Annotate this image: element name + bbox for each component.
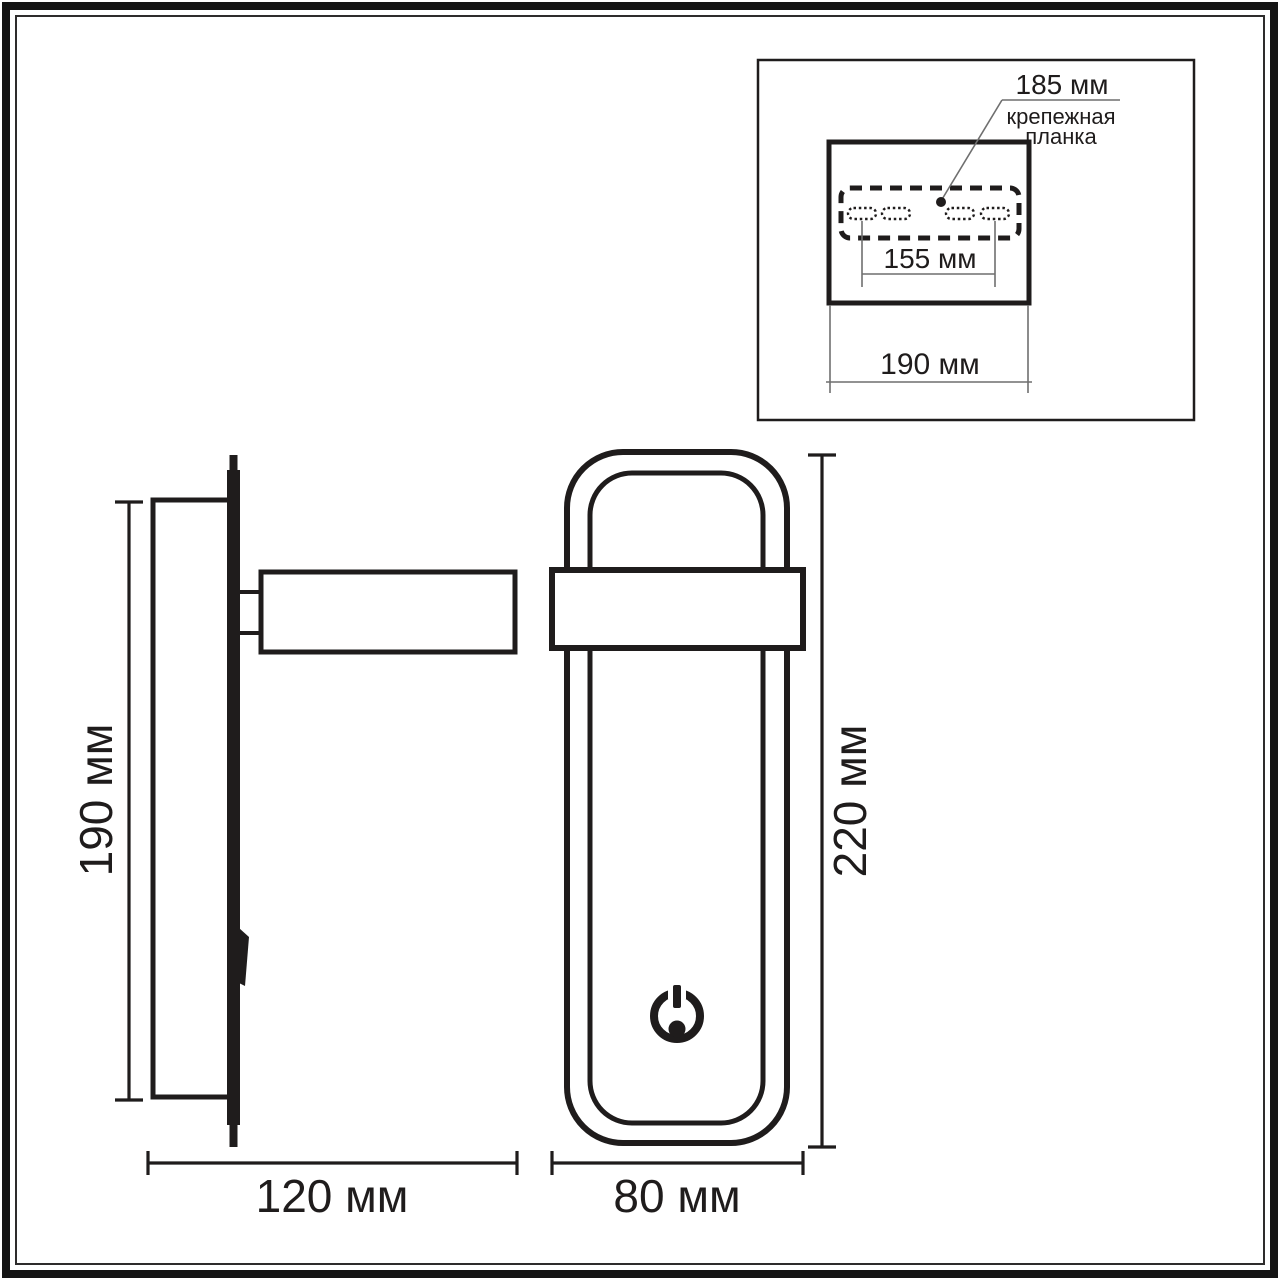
- bracket-name-line2: планка: [1025, 124, 1097, 149]
- backplate-outline: [153, 500, 230, 1097]
- front-width-label: 80 мм: [613, 1170, 740, 1222]
- mounting-slot-2: [882, 208, 910, 219]
- spot-arm: [261, 572, 515, 652]
- spot-head-front: [552, 570, 803, 648]
- side-view: 190 мм 120 мм: [70, 455, 517, 1222]
- wall-bar-top-tip: [230, 455, 238, 475]
- box-width-label: 190 мм: [880, 348, 980, 381]
- side-depth-label: 120 мм: [256, 1170, 409, 1222]
- drawing-canvas: 185 мм крепежная планка 155 мм 190 мм: [0, 0, 1280, 1280]
- power-icon-bar: [673, 985, 681, 1008]
- inset-detail: 185 мм крепежная планка 155 мм 190 мм: [758, 60, 1194, 420]
- front-height-label: 220 мм: [824, 725, 876, 878]
- switch-toggle: [239, 928, 249, 986]
- side-height-label: 190 мм: [70, 724, 122, 877]
- wall-bar: [227, 470, 240, 1125]
- technical-drawing-page: 185 мм крепежная планка 155 мм 190 мм: [0, 0, 1280, 1280]
- leader-dot: [936, 197, 946, 207]
- bracket-width-label: 185 мм: [1016, 69, 1109, 100]
- mounting-slot-1: [848, 208, 876, 219]
- power-icon-dot: [669, 1021, 686, 1038]
- mounting-slot-3: [946, 208, 974, 219]
- slot-spacing-label: 155 мм: [884, 243, 977, 274]
- wall-bar-bottom-tip: [230, 1120, 238, 1147]
- mounting-slot-4: [981, 208, 1009, 219]
- mounting-box: [829, 142, 1029, 303]
- front-view: 220 мм 80 мм: [552, 452, 876, 1222]
